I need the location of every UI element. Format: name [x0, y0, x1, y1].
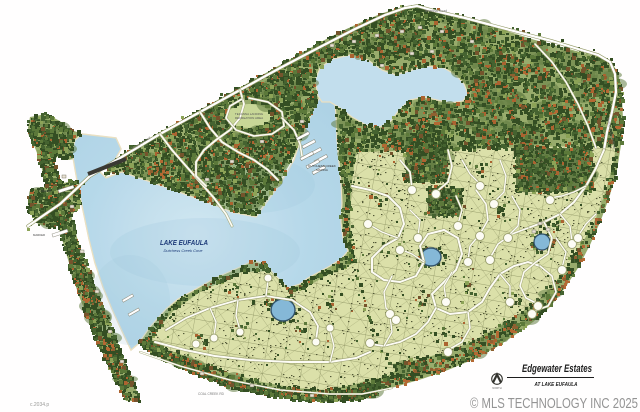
svg-text:Texanna Road: Texanna Road — [424, 9, 447, 13]
svg-text:© MLS TECHNOLOGY INC 2025: © MLS TECHNOLOGY INC 2025 — [470, 396, 638, 412]
svg-text:Dutchess Creek Cove: Dutchess Creek Cove — [164, 248, 204, 253]
svg-text:c.2034.p: c.2034.p — [30, 402, 49, 408]
svg-text:MARKER: MARKER — [33, 233, 45, 237]
svg-text:NORTH: NORTH — [492, 386, 501, 390]
svg-text:LAKE EUFAULA: LAKE EUFAULA — [160, 238, 208, 247]
svg-text:Edgewater Estates: Edgewater Estates — [522, 363, 592, 375]
svg-text:MARINA: MARINA — [316, 168, 328, 172]
svg-text:RECREATION AREA: RECREATION AREA — [235, 116, 263, 120]
svg-text:COAL CREEK RD: COAL CREEK RD — [198, 392, 225, 396]
svg-text:AT LAKE EUFAULA: AT LAKE EUFAULA — [534, 382, 578, 388]
svg-text:MARKER: MARKER — [39, 189, 51, 193]
